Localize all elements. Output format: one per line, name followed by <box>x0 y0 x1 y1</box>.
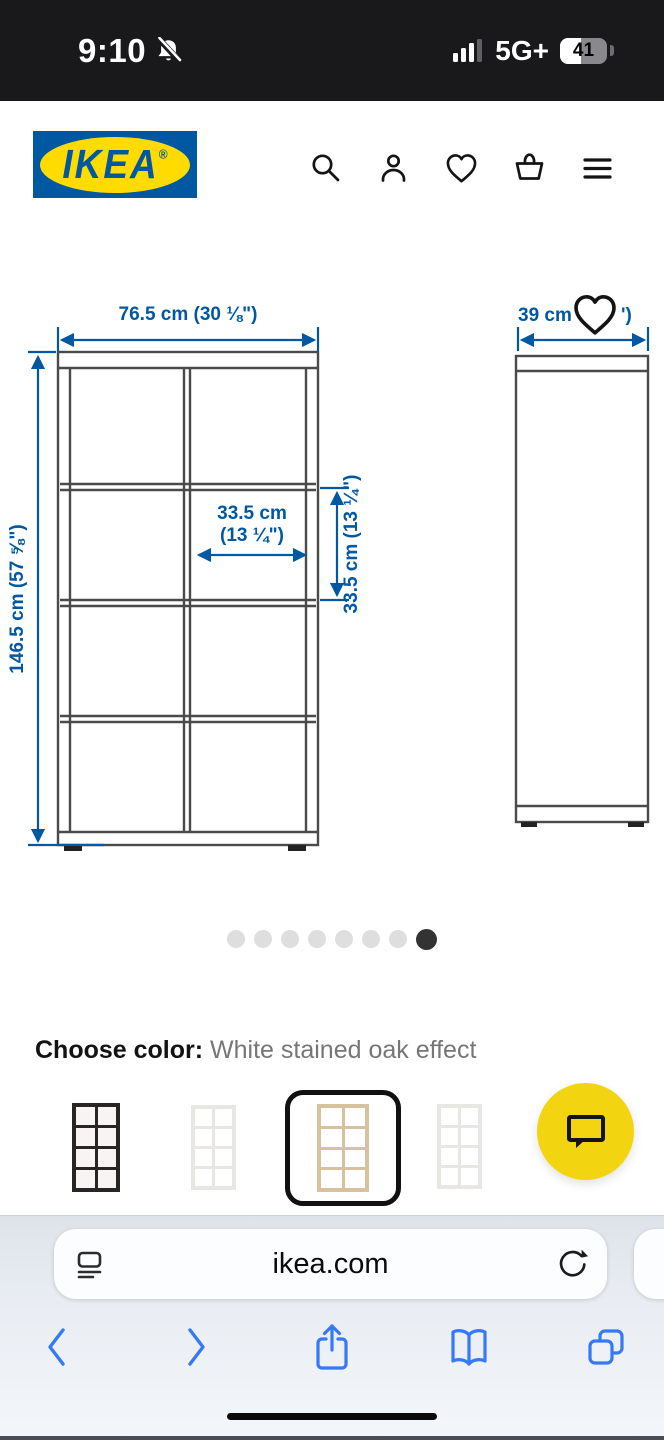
shelf-cell <box>441 1108 458 1125</box>
cart-icon[interactable] <box>512 145 547 191</box>
search-icon[interactable] <box>308 145 343 191</box>
shelf-cell <box>345 1108 366 1126</box>
shelf-cell <box>345 1150 366 1168</box>
dimension-lines <box>28 327 648 845</box>
reload-icon[interactable] <box>537 1229 607 1299</box>
shelf-cell <box>441 1148 458 1165</box>
carousel-dot-2[interactable] <box>254 930 272 948</box>
share-icon[interactable] <box>304 1319 360 1375</box>
next-tab-peek[interactable] <box>634 1229 664 1299</box>
status-left: 9:10 <box>78 0 182 101</box>
network-type: 5G+ <box>495 35 549 67</box>
shelf-cell <box>215 1169 232 1186</box>
shelf-cell <box>461 1148 478 1165</box>
shelf-cell <box>98 1149 117 1167</box>
carousel-dot-4[interactable] <box>308 930 326 948</box>
ikea-logo-oval: IKEA® <box>40 137 190 193</box>
status-bar: 9:10 5G+ <box>0 0 664 101</box>
shelf-cell <box>195 1149 212 1166</box>
shelf-cell <box>345 1170 366 1188</box>
shelf-cell <box>215 1129 232 1146</box>
shelf-cell <box>321 1150 342 1168</box>
shelf-cell <box>98 1107 117 1125</box>
header-icons <box>308 145 615 191</box>
battery-nub <box>610 45 614 56</box>
cell-height-label: 33.5 cm (13 ¼") <box>341 394 363 694</box>
color-option-black-brown[interactable] <box>72 1103 120 1192</box>
shelf-cell <box>215 1149 232 1166</box>
front-foot-left <box>64 845 82 851</box>
carousel-dot-7[interactable] <box>389 930 407 948</box>
ikea-logo-text: IKEA® <box>62 144 167 185</box>
side-depth-label: 39 cm <box>518 305 572 327</box>
front-height-label: 146.5 cm (57 ⅝") <box>7 449 29 749</box>
side-depth-label-end: ') <box>621 305 632 327</box>
choose-color-value: White stained oak effect <box>210 1036 476 1064</box>
status-right: 5G+ 41 <box>453 0 614 101</box>
profile-icon[interactable] <box>376 145 411 191</box>
choose-color-row: Choose color: White stained oak effect <box>35 1036 476 1065</box>
notifications-off-icon <box>155 37 182 65</box>
oak-shelf-thumbnail <box>317 1104 369 1192</box>
carousel-dot-6[interactable] <box>362 930 380 948</box>
forward-icon[interactable] <box>167 1319 223 1375</box>
shelf-cell <box>461 1168 478 1185</box>
shelf-cell <box>321 1108 342 1126</box>
side-view-drawing <box>516 356 648 822</box>
shelf-cell <box>321 1170 342 1188</box>
shelf-cell <box>321 1129 342 1147</box>
shelf-cell <box>98 1170 117 1188</box>
shelf-cell <box>461 1128 478 1145</box>
shelf-cell <box>461 1108 478 1125</box>
shelf-cell <box>195 1109 212 1126</box>
menu-icon[interactable] <box>580 145 615 191</box>
favorite-heart-icon[interactable] <box>572 293 618 337</box>
shelf-cell <box>215 1109 232 1126</box>
carousel-dot-5[interactable] <box>335 930 353 948</box>
shelf-cell <box>76 1149 95 1167</box>
side-foot-left <box>521 822 537 827</box>
shelf-cell <box>98 1128 117 1146</box>
carousel-dot-8[interactable] <box>416 929 437 950</box>
chat-bubble-icon <box>565 1113 607 1150</box>
front-foot-right <box>288 845 306 851</box>
bookmarks-icon[interactable] <box>441 1319 497 1375</box>
cell-width-label: 33.5 cm (13 ¼") <box>195 503 309 547</box>
screen-bottom-edge <box>0 1436 664 1440</box>
front-width-label: 76.5 cm (30 ⅛") <box>58 304 318 326</box>
carousel-dots <box>0 926 664 952</box>
side-foot-right <box>628 822 644 827</box>
address-bar[interactable]: ikea.com <box>54 1229 607 1299</box>
clock: 9:10 <box>78 32 146 70</box>
shelf-cell <box>76 1107 95 1125</box>
choose-color-label: Choose color: <box>35 1036 203 1064</box>
shelf-cell <box>195 1169 212 1186</box>
home-indicator[interactable] <box>227 1413 437 1420</box>
front-view-drawing <box>58 352 318 845</box>
carousel-dot-1[interactable] <box>227 930 245 948</box>
color-option-white-stained-oak-selected[interactable] <box>285 1090 401 1206</box>
browser-toolbar <box>0 1316 664 1378</box>
shelf-cell <box>195 1129 212 1146</box>
shelf-cell <box>76 1128 95 1146</box>
battery-icon: 41 <box>560 38 607 64</box>
signal-strength-icon <box>453 39 484 62</box>
color-option-white-1[interactable] <box>191 1105 236 1190</box>
page-menu-icon[interactable] <box>54 1229 124 1299</box>
color-option-white-2[interactable] <box>437 1104 482 1189</box>
shelf-cell <box>441 1168 458 1185</box>
shelf-cell <box>441 1128 458 1145</box>
screen: 9:10 5G+ <box>0 0 664 1440</box>
ikea-logo[interactable]: IKEA® <box>33 131 197 198</box>
back-icon[interactable] <box>30 1319 86 1375</box>
shelf-cell <box>345 1129 366 1147</box>
carousel-dot-3[interactable] <box>281 930 299 948</box>
url-text: ikea.com <box>124 1248 537 1281</box>
chat-button[interactable] <box>537 1083 634 1180</box>
tabs-icon[interactable] <box>578 1319 634 1375</box>
wishlist-icon[interactable] <box>444 145 479 191</box>
shelf-cell <box>76 1170 95 1188</box>
